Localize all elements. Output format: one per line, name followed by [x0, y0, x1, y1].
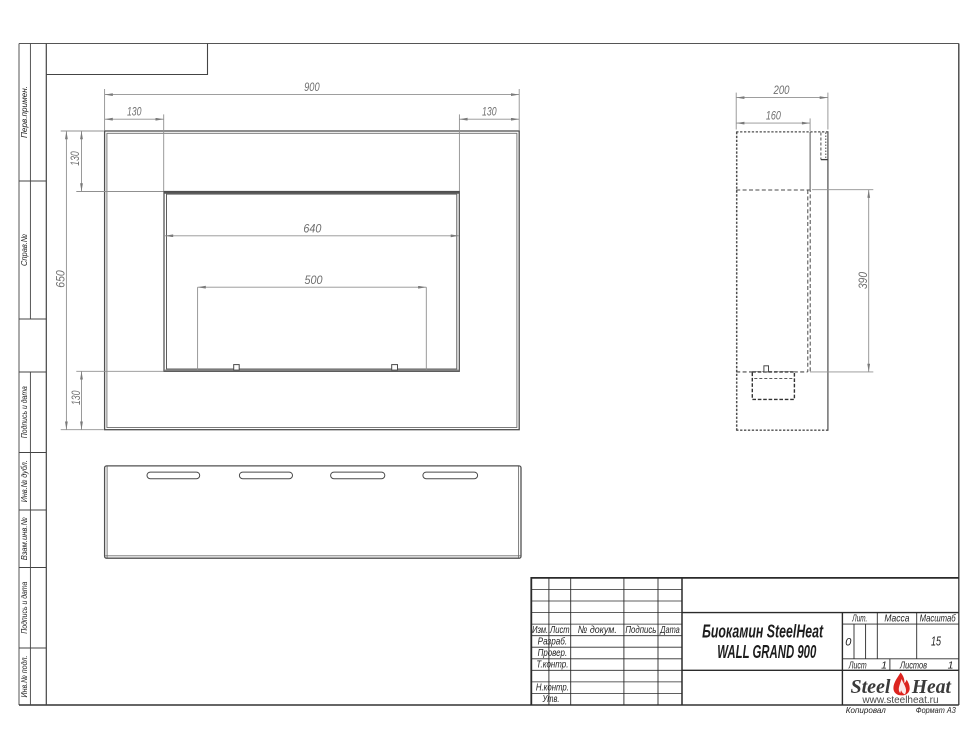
svg-text:Лит.: Лит.	[852, 613, 868, 625]
svg-text:Инв.№ дубл.: Инв.№ дубл.	[19, 460, 29, 502]
svg-text:Инв.№ подл.: Инв.№ подл.	[19, 656, 29, 698]
svg-text:160: 160	[766, 108, 781, 122]
svg-text:Н.контр.: Н.контр.	[536, 682, 569, 694]
svg-text:0: 0	[845, 636, 852, 648]
svg-text:500: 500	[305, 273, 323, 287]
svg-text:Утв.: Утв.	[542, 693, 560, 705]
svg-text:Т.контр.: Т.контр.	[536, 659, 568, 671]
svg-text:Формат А3: Формат А3	[916, 705, 956, 715]
svg-text:15: 15	[931, 634, 942, 649]
svg-text:900: 900	[304, 80, 320, 94]
svg-text:Изм.: Изм.	[532, 624, 548, 636]
svg-text:Провер.: Провер.	[538, 647, 568, 659]
svg-text:Разраб.: Разраб.	[538, 636, 568, 648]
svg-text:Лист: Лист	[848, 659, 867, 671]
svg-text:640: 640	[303, 222, 321, 236]
svg-text:Масса: Масса	[884, 613, 909, 625]
svg-text:Справ.№: Справ.№	[19, 234, 29, 266]
svg-text:650: 650	[54, 270, 68, 288]
svg-text:Подпись и дата: Подпись и дата	[19, 581, 29, 633]
svg-text:Дата: Дата	[660, 624, 680, 636]
svg-text:Перв.примен.: Перв.примен.	[19, 86, 29, 138]
svg-text:130: 130	[68, 151, 82, 166]
svg-text:Взам.инв.№: Взам.инв.№	[19, 517, 29, 560]
svg-text:Биокамин SteelHeat: Биокамин SteelHeat	[702, 621, 824, 642]
svg-text:390: 390	[856, 272, 870, 289]
svg-text:Листов: Листов	[899, 659, 927, 671]
svg-text:Подпись и дата: Подпись и дата	[19, 386, 29, 438]
svg-text:130: 130	[69, 390, 83, 405]
svg-text:200: 200	[773, 83, 790, 97]
svg-text:130: 130	[127, 105, 142, 119]
svg-text:Копировал: Копировал	[846, 705, 886, 715]
svg-text:Масштаб: Масштаб	[920, 613, 957, 625]
svg-text:Подпись: Подпись	[625, 624, 656, 636]
svg-text:WALL GRAND 900: WALL GRAND 900	[717, 642, 816, 662]
svg-text:130: 130	[482, 105, 497, 119]
svg-text:№ докум.: № докум.	[578, 624, 617, 636]
svg-text:Лист: Лист	[549, 624, 569, 636]
svg-text:1: 1	[881, 659, 887, 671]
svg-text:1: 1	[948, 659, 954, 671]
